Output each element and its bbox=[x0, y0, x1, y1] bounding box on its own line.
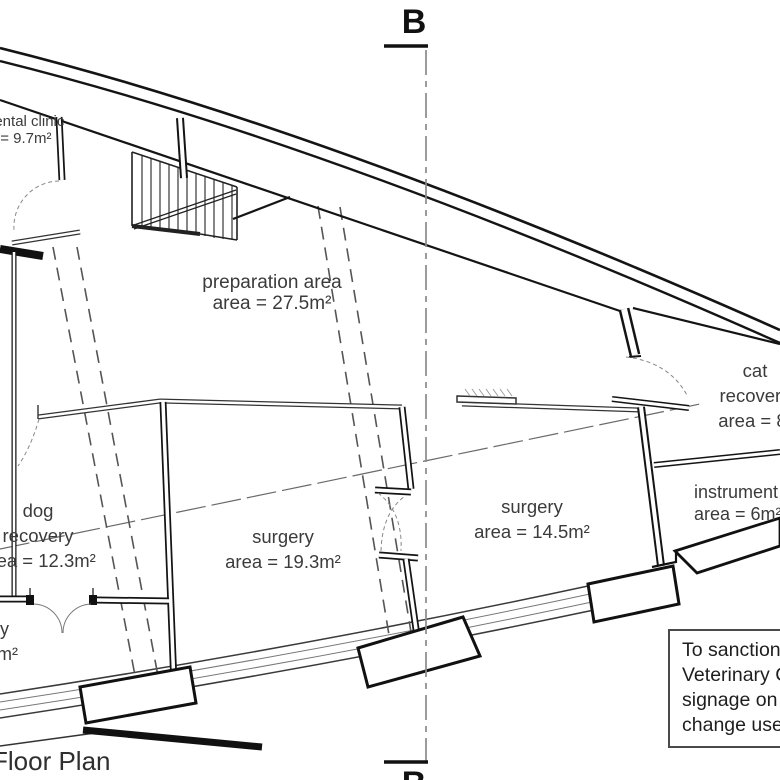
drawing-title: Floor Plan bbox=[0, 746, 111, 777]
bottom-left-walls bbox=[0, 730, 262, 747]
stair-side-wall bbox=[180, 118, 184, 178]
double-door-swing-right bbox=[63, 604, 91, 633]
double-door-swing-left bbox=[34, 604, 62, 633]
dog-surgery-wall bbox=[163, 402, 174, 685]
cat-instrument-wall bbox=[654, 452, 780, 465]
section-marker-b-top: B bbox=[392, 3, 436, 42]
bottom-wall-doors bbox=[0, 588, 169, 633]
section-marker-b-bottom: B bbox=[392, 765, 436, 780]
bottom-right-wall-band bbox=[652, 518, 780, 573]
surgery-partition bbox=[375, 407, 418, 636]
room-label-dog-recovery: dog recovery area = 12.3m² bbox=[0, 498, 138, 573]
top-wall-band bbox=[0, 48, 780, 344]
floor-plan-canvas: dental clinic area = 9.7m² preparation a… bbox=[0, 0, 780, 780]
room-area-dental-clinic: area = 9.7m² bbox=[0, 130, 51, 147]
room-label-instrument: instrument area = 6m² bbox=[694, 481, 780, 525]
room-label-surgery-2: surgery area = 14.5m² bbox=[432, 494, 632, 544]
room-label-entry-clipped: y bbox=[0, 619, 9, 640]
planning-note-box: To sanction Veterinary C signage on fa c… bbox=[668, 629, 780, 748]
prep-divider-counter bbox=[18, 401, 402, 466]
room-label-cat-recovery: cat recovery area = 8. bbox=[655, 358, 780, 433]
prep-cat-wall-stub bbox=[624, 309, 641, 357]
room-label-dental-clinic: dental clinic bbox=[0, 113, 64, 130]
room-label-surgery-1: surgery area = 19.3m² bbox=[183, 524, 383, 574]
room-label-preparation-area: preparation area area = 27.5m² bbox=[160, 272, 384, 314]
dog-recovery-door-swing bbox=[18, 419, 39, 466]
room-area-entry-clipped: m² bbox=[0, 644, 18, 665]
dental-door-swing bbox=[14, 181, 59, 230]
